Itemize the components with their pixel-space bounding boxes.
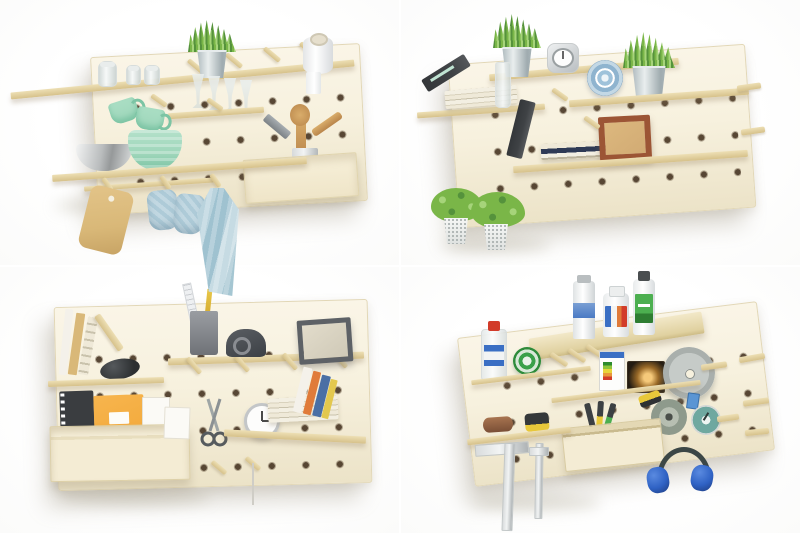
glass-jar bbox=[98, 61, 117, 87]
grass-plant bbox=[493, 14, 541, 48]
panel-living-room bbox=[401, 0, 800, 265]
tape-dispenser bbox=[226, 329, 266, 357]
grass-plant bbox=[188, 20, 236, 52]
picture-frame bbox=[297, 317, 354, 365]
ear-defender-cup bbox=[689, 463, 715, 492]
cutting-board bbox=[77, 184, 135, 257]
tape-roll bbox=[513, 347, 541, 375]
bottle-cap bbox=[638, 271, 650, 281]
pull-string bbox=[252, 463, 254, 505]
solvent-bottle bbox=[481, 329, 507, 381]
glass-jar bbox=[144, 65, 160, 85]
paper-towel-tail bbox=[306, 72, 321, 94]
floor-shadow bbox=[60, 489, 210, 505]
glass-vase bbox=[495, 62, 511, 108]
picture-frame bbox=[598, 115, 652, 162]
mandala-plate bbox=[587, 60, 623, 96]
perforated-pot bbox=[443, 218, 469, 244]
bottle-cap bbox=[609, 286, 626, 297]
panel-home-office bbox=[0, 267, 399, 533]
scissors bbox=[200, 397, 228, 451]
sketch-card bbox=[163, 407, 190, 440]
can-label bbox=[573, 303, 595, 318]
try-square-blade bbox=[501, 443, 515, 531]
product-bottle bbox=[633, 279, 655, 335]
spray-can bbox=[573, 281, 595, 339]
bottle-label bbox=[635, 294, 654, 323]
alarm-clock bbox=[547, 43, 579, 73]
product-bottle bbox=[603, 293, 629, 337]
sandpaper-roll bbox=[483, 416, 514, 433]
bottle-label bbox=[605, 306, 628, 327]
caliper-jaw bbox=[529, 447, 549, 456]
wooden-spoon-head bbox=[290, 104, 310, 126]
pencil-cup bbox=[190, 311, 218, 355]
circular-saw-blade bbox=[663, 347, 715, 399]
panel-workshop bbox=[401, 267, 800, 533]
glass-jar bbox=[126, 65, 141, 85]
zinc-bucket bbox=[196, 50, 228, 78]
perforated-pot bbox=[483, 224, 509, 250]
paper-towel-roll bbox=[303, 36, 333, 74]
bulb-box bbox=[599, 351, 625, 391]
pegboard-collage bbox=[0, 0, 800, 533]
